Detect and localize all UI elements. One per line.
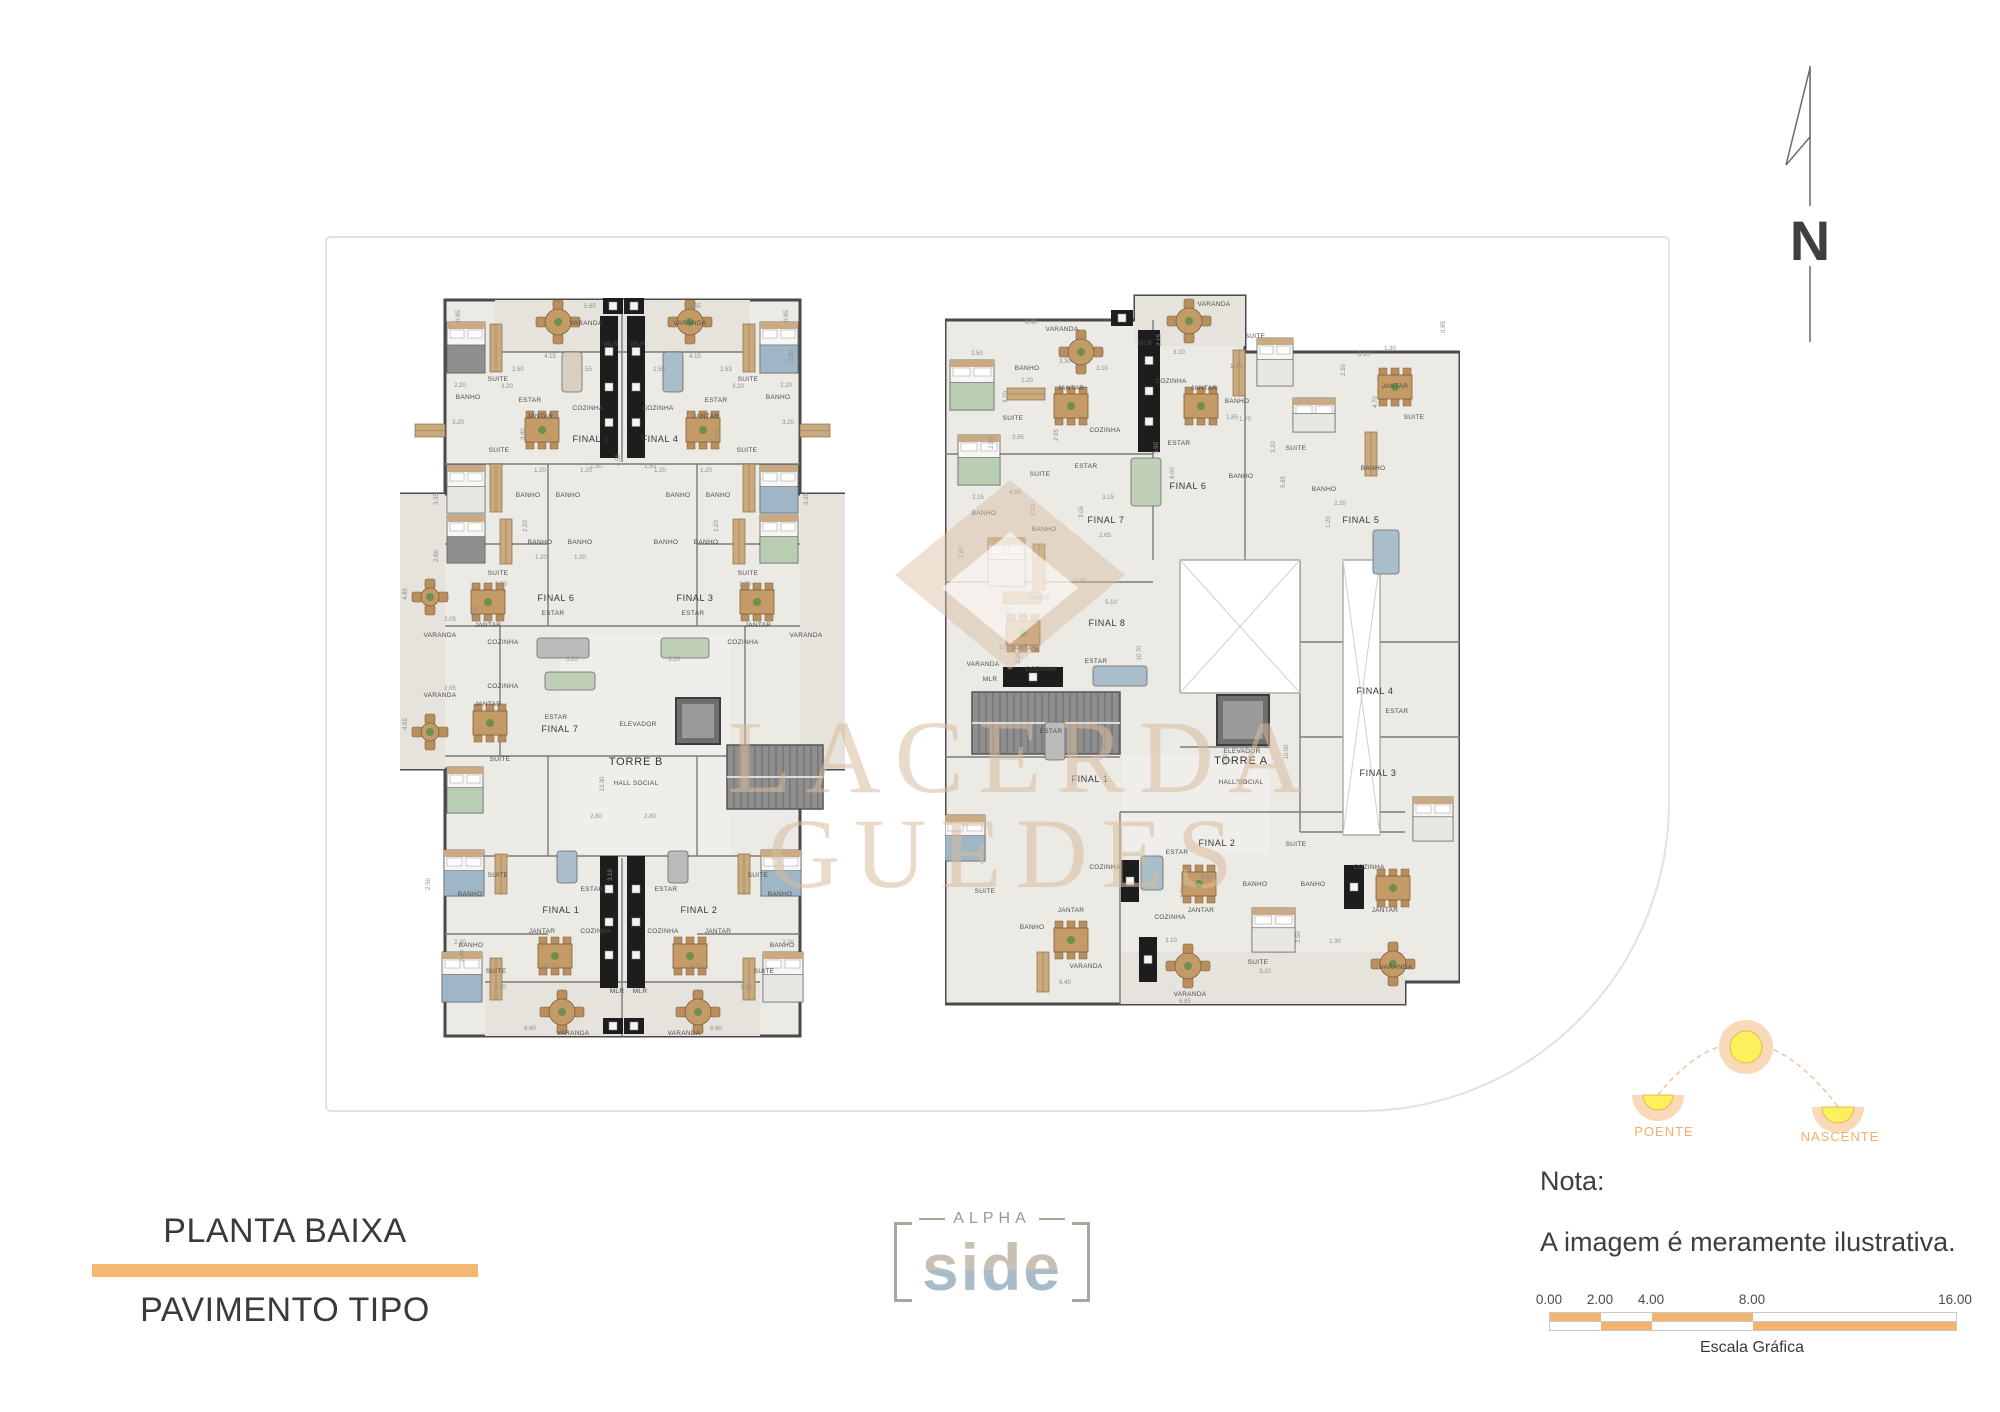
room-label: MLR [983,676,998,683]
room-label: MLR [1138,340,1153,347]
dimension-label: 2.20 [1334,501,1346,507]
dimension-label: 2.80 [644,814,656,820]
tower-b-floorplan: VARANDAVARANDAMLRMLRSUITESUITEBANHOBANHO… [400,294,845,1042]
logo-left-bracket [894,1222,912,1302]
noon-sun-icon [1730,1031,1762,1063]
room-label: VARANDA [673,320,706,327]
room-label: MLR [631,341,646,348]
room-label: SUITE [748,872,769,879]
room-label: SUITE [738,570,759,577]
room-label: BANHO [1243,881,1268,888]
dimension-label: 2.50 [971,351,983,357]
hall-social-label: HALL SOCIAL [614,780,659,787]
dimension-label: 2.65 [1099,533,1111,539]
dimension-label: 4.15 [544,354,556,360]
dimension-label: 3.15 [1102,495,1114,501]
dimension-label: 3.10 [1096,366,1108,372]
dimension-label: 1.70 [1230,364,1242,370]
dimension-label: 2.40 [460,950,466,962]
scale-caption: Escala Gráfica [1549,1339,1955,1357]
tower-a-floorplan: VARANDAVARANDABANHOSUITEJANTARCOZINHAMLR… [945,292,1460,1008]
room-label: SUITE [737,447,758,454]
dimension-label: 3.10 [1165,938,1177,944]
room-label: VARANDA [1173,991,1206,998]
dimension-label: 2.05 [444,686,456,692]
dimension-label: 5.10 [1105,600,1117,606]
dimension-label: 1.85 [1226,415,1238,421]
dimension-label: 1.20 [1021,378,1033,384]
dimension-label: 3.85 [1012,435,1024,441]
dimension-label: 3.00 [1016,652,1022,664]
dimension-label: 4.65 [403,718,409,730]
dimension-label: 4.70 [1373,396,1379,408]
scale-tick: 16.00 [1938,1292,1972,1307]
room-label: SUITE [1030,471,1051,478]
unit-label: FINAL 6 [1170,481,1207,491]
room-label: ESTAR [655,886,678,893]
dimension-label: 3.20 [501,384,513,390]
scale-segment [1753,1313,1956,1321]
unit-label: FINAL 2 [681,905,718,915]
room-label: VARANDA [556,1030,589,1037]
room-label: SUITE [1248,959,1269,966]
room-label: BANHO [1361,465,1386,472]
dimension-label: 3.00 [473,606,479,618]
dimension-label: 6.00 [1170,467,1176,479]
dimension-label: 2.20 [1031,504,1037,516]
dimension-label: 3.10 [608,869,614,881]
dimension-label: 2.60 [434,550,440,562]
room-label: JANTAR [1191,385,1218,392]
dimension-label: 3.10 [1358,352,1370,358]
room-label: COZINHA [572,405,604,412]
scale-segment [1753,1322,1956,1330]
dimension-label: 1.55 [653,367,665,373]
room-label: VARANDA [1197,301,1230,308]
dimension-label: 3.60 [999,608,1011,614]
dimension-label: 0.85 [456,310,462,322]
room-label: JANTAR [1058,385,1085,392]
room-label: BANHO [516,492,541,499]
dimension-label: 2.20 [454,940,466,946]
scale-segment [1601,1313,1652,1321]
room-label: VARANDA [423,632,456,639]
dimension-label: 6.40 [1025,320,1037,326]
dimension-label: 10.00 [1284,744,1290,760]
room-label: BANHO [766,394,791,401]
dimension-label: 1.20 [534,468,546,474]
room-label: JANTAR [475,701,502,708]
unit-label: FINAL 7 [542,724,579,734]
unit-label: FINAL 3 [1360,768,1397,778]
room-label: ELEVADOR [1223,748,1260,755]
dimension-label: 3.80 [716,428,722,440]
room-label: COZINHA [1089,864,1121,871]
logo-left-line [919,1218,945,1220]
unit-label: FINAL 1 [543,905,580,915]
graphic-scale: 0.002.004.008.0016.00 Escala Gráfica [1536,1292,1976,1357]
room-label: VARANDA [1069,963,1102,970]
dimension-label: 0.85 [1441,321,1447,333]
room-label: JANTAR [693,413,720,420]
dimension-label: 4.15 [689,354,701,360]
dimension-label: 10.70 [1137,645,1143,661]
room-label: COZINHA [1155,378,1187,385]
dimension-label: 2.20 [714,520,720,532]
title-accent-bar [92,1264,478,1277]
dimension-label: 2.50 [512,367,524,373]
room-label: BANHO [1020,924,1045,931]
unit-label: FINAL 1 [1072,774,1109,784]
dimension-label: 2.05 [999,645,1011,651]
room-label: BANHO [972,510,997,517]
dimension-label: 2.05 [444,617,456,623]
room-label: VARANDA [667,1030,700,1037]
scale-bar [1549,1312,1957,1331]
dimension-label: 2.50 [789,350,795,362]
dimension-label: 3.35 [804,493,810,505]
room-label: SUITE [488,570,509,577]
dimension-label: 1.30 [1384,346,1396,352]
dimension-label: 6.85 [1179,999,1191,1005]
room-label: BANHO [706,492,731,499]
dimension-label: 1.20 [574,555,586,561]
unit-label: FINAL 8 [1089,618,1126,628]
room-label: VARANDA [1045,326,1078,333]
room-label: COZINHA [487,683,519,690]
dimension-label: 0.85 [784,310,790,322]
room-label: SUITE [1286,841,1307,848]
room-label: BANHO [1032,526,1057,533]
room-label: BANHO [1301,881,1326,888]
room-label: ESTAR [581,886,604,893]
dimension-label: 1.20 [535,555,547,561]
poente-label: POENTE [1634,1124,1693,1139]
room-label: JANTAR [1382,383,1409,390]
dimension-label: 3.70 [495,582,507,588]
scale-segment [1550,1322,1601,1330]
tower-name-label: TORRE B [609,756,663,768]
room-label: VARANDA [966,661,999,668]
room-label: JANTAR [527,413,554,420]
room-label: BANHO [666,492,691,499]
room-label: ESTAR [519,397,542,404]
logo-right-bracket [1072,1222,1090,1302]
dimension-label: 3.05 [1079,506,1085,518]
room-label: SUITE [975,888,996,895]
title-block: PLANTA BAIXA PAVIMENTO TIPO [92,1212,478,1330]
room-label: JANTAR [529,928,556,935]
room-label: ESTAR [545,714,568,721]
room-label: BANHO [456,394,481,401]
scale-tick-labels: 0.002.004.008.0016.00 [1536,1292,1976,1312]
room-label: COZINHA [580,928,612,935]
unit-label: FINAL 5 [573,434,610,444]
dimension-label: 2.50 [989,437,995,449]
room-label: SUITE [738,376,759,383]
dimension-label: 3.35 [434,493,440,505]
room-label: ESTAR [1085,658,1108,665]
room-label: ESTAR [1075,463,1098,470]
room-label: JANTAR [1058,907,1085,914]
scale-segment [1652,1313,1754,1321]
room-label: SUITE [490,756,511,763]
note-body: A imagem é meramente ilustrativa. [1540,1227,1956,1258]
room-label: BANHO [1229,473,1254,480]
room-label: COZINHA [1089,427,1121,434]
dimension-label: 3.20 [732,384,744,390]
sheet-subtitle: PAVIMENTO TIPO [92,1291,478,1330]
unit-label: FINAL 2 [1199,838,1236,848]
room-label: ESTAR [1040,728,1063,735]
room-label: COZINHA [1154,914,1186,921]
room-label: BANHO [458,891,483,898]
unit-label: FINAL 4 [642,434,679,444]
room-label: JANTAR [745,622,772,629]
dimension-label: 13.30 [600,776,606,792]
dimension-label: 6.40 [1059,980,1071,986]
room-label: SUITE [1245,333,1266,340]
dimension-label: 1.50 [590,464,602,470]
dimension-label: 2.20 [523,520,529,532]
dimension-label: 5.85 [1281,476,1287,488]
dimension-label: 3.20 [1003,391,1009,403]
note-heading: Nota: [1540,1166,1956,1197]
unit-label: FINAL 7 [1088,515,1125,525]
dimension-label: 5.20 [566,657,578,663]
dimension-label: 6.60 [524,1026,536,1032]
room-label: COZINHA [1353,864,1385,871]
dimension-label: 5.90 [1154,442,1160,454]
unit-label: FINAL 6 [538,593,575,603]
room-label: BANHO [1015,365,1040,372]
dimension-label: 1.20 [700,468,712,474]
dimension-label: 2.50 [1341,364,1347,376]
north-label: N [1790,209,1830,272]
room-label: COZINHA [642,405,674,412]
room-label: ESTAR [1386,708,1409,715]
room-label: ESTAR [1168,440,1191,447]
room-label: BANHO [768,891,793,898]
room-label: ESTAR [542,610,565,617]
room-label: COZINHA [647,928,679,935]
dimension-label: 1.70 [1239,417,1251,423]
room-label: BANHO [1225,398,1250,405]
note-block: Nota: A imagem é meramente ilustrativa. [1540,1166,1956,1258]
dimension-label: 2.20 [780,383,792,389]
room-label: ESTAR [1166,849,1189,856]
dimension-label: 2.53 [720,367,732,373]
room-label: BANHO [556,492,581,499]
room-label: BANHO [1312,486,1337,493]
dimension-label: 3.20 [452,420,464,426]
dimension-label: 2.15 [972,495,984,501]
dimension-label: 2.60 [959,546,965,558]
dimension-label: 1.20 [1074,579,1086,585]
dimension-label: 6.60 [710,1026,722,1032]
unit-label: FINAL 5 [1343,515,1380,525]
dimension-label: 4.50 [616,454,622,466]
room-label: MLR [610,988,625,995]
unit-label: FINAL 4 [1357,686,1394,696]
room-label: BANHO [528,539,553,546]
dimension-label: 4.15 [690,964,702,970]
room-label: SUITE [1003,415,1024,422]
dimension-label: 3.30 [1059,359,1071,365]
scale-segment [1652,1322,1754,1330]
dimension-label: 3.10 [1173,350,1185,356]
room-label: SUITE [754,968,775,975]
room-label: ELEVADOR [619,721,656,728]
dimension-label: 1.20 [1326,516,1332,528]
room-label: SUITE [489,447,510,454]
room-label: SUITE [1030,595,1051,602]
logo-right-line [1039,1218,1065,1220]
room-label: SUITE [486,968,507,975]
dimension-label: 1.55 [580,367,592,373]
room-label: JANTAR [1372,907,1399,914]
dimension-label: 2.50 [1296,931,1302,943]
room-label: JANTAR [1011,645,1038,652]
dimension-label: 1.70 [1181,886,1187,898]
room-label: VARANDA [789,632,822,639]
dimension-label: 3.70 [739,582,751,588]
room-label: VARANDA [569,320,602,327]
scale-tick: 4.00 [1638,1292,1664,1307]
alpha-side-logo: ALPHA side side [892,1198,1092,1318]
dimension-label: 4.50 [1009,490,1021,496]
dimension-label: 1.65 [1201,875,1213,881]
scale-segment [1601,1322,1652,1330]
room-label: SUITE [488,872,509,879]
room-label: ESTAR [682,610,705,617]
unit-label: FINAL 3 [677,593,714,603]
dimension-label: 2.80 [590,814,602,820]
room-label: SUITE [1404,414,1425,421]
room-label: COZINHA [727,639,759,646]
dimension-label: 2.95 [1054,429,1060,441]
dimension-label: 2.15 [1157,334,1163,346]
logo-alpha-text: ALPHA [953,1210,1030,1228]
north-arrow: N [1770,48,1870,368]
room-label: JANTAR [705,928,732,935]
dimension-label: 5.65 [584,304,596,310]
nascente-label: NASCENTE [1801,1129,1880,1144]
room-label: MLR [633,988,648,995]
floorplan-sheet: { "title_block":{"line1":"PLANTA BAIXA",… [0,0,2000,1412]
dimension-label: 1.20 [580,468,592,474]
dimension-label: 1.20 [654,468,666,474]
dimension-label: 5.65 [689,304,701,310]
sun-path-diagram: POENTE NASCENTE [1598,995,1928,1160]
dimension-label: 3.20 [1271,441,1277,453]
dimension-label: 2.20 [782,940,794,946]
room-label: VARANDA [423,692,456,699]
dimension-label: 3.20 [782,420,794,426]
scale-tick: 2.00 [1587,1292,1613,1307]
dimension-label: 3.80 [521,428,527,440]
room-label: SUITE [1286,445,1307,452]
room-label: VARANDA [1379,964,1412,971]
scale-tick: 0.00 [1536,1292,1562,1307]
dimension-label: 2.50 [448,350,454,362]
room-label: COZINHA [1025,666,1057,673]
scale-segment [1550,1313,1601,1321]
room-label: BANHO [694,539,719,546]
tower-name-label: TORRE A [1214,755,1268,767]
dimension-label: 4.85 [403,588,409,600]
scale-tick: 8.00 [1739,1292,1765,1307]
dimension-label: 3.20 [494,985,506,991]
dimension-label: 1.30 [1329,939,1341,945]
hall-social-label: HALL SOCIAL [1219,779,1264,786]
sheet-title: PLANTA BAIXA [92,1212,478,1251]
room-label: BANHO [654,539,679,546]
dimension-label: 3.10 [1259,969,1271,975]
dimension-label: 3.20 [740,985,752,991]
dimension-label: 5.20 [668,657,680,663]
room-label: COZINHA [487,639,519,646]
room-label: SUITE [488,376,509,383]
room-label: MLR [604,341,619,348]
dimension-label: 2.20 [454,383,466,389]
dimension-label: 4.15 [544,964,556,970]
room-label: BANHO [568,539,593,546]
room-label: JANTAR [1188,907,1215,914]
room-label: ESTAR [705,397,728,404]
dimension-label: 2.50 [426,878,432,890]
room-label: JANTAR [475,622,502,629]
